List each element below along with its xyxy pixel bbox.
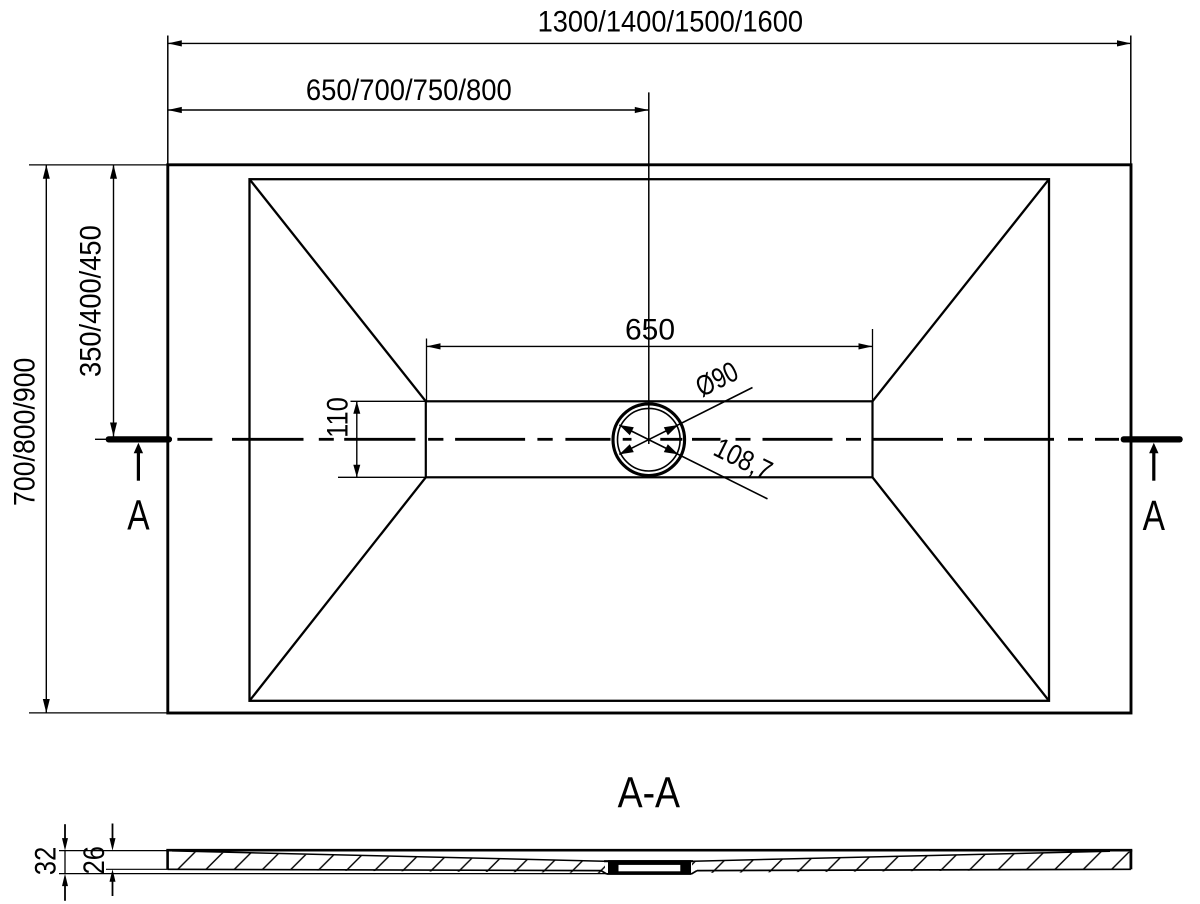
svg-text:A-A: A-A (618, 768, 680, 817)
svg-text:A: A (127, 492, 150, 540)
svg-text:1300/1400/1500/1600: 1300/1400/1500/1600 (538, 6, 803, 39)
svg-text:650: 650 (625, 313, 675, 346)
svg-text:700/800/900: 700/800/900 (8, 358, 42, 506)
svg-text:650/700/750/800: 650/700/750/800 (306, 74, 512, 107)
svg-text:350/400/450: 350/400/450 (75, 225, 108, 377)
svg-text:110: 110 (320, 397, 353, 438)
svg-text:32: 32 (28, 847, 61, 875)
svg-text:A: A (1143, 492, 1166, 540)
